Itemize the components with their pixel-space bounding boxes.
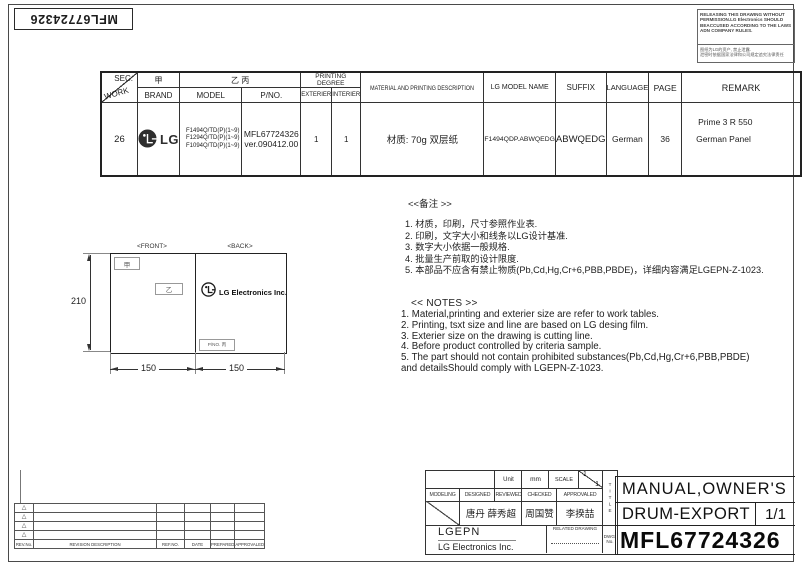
unit-label: Unit	[494, 471, 522, 489]
release-warning-box: RELEASING THIS DRAWING WITHOUT PERMISSIO…	[697, 9, 795, 63]
back-logo-text: LG Electronics Inc.	[219, 288, 287, 297]
company-code: LGEPN	[438, 526, 480, 538]
brand-text: LG	[160, 132, 179, 147]
header-interier: INTERIER	[332, 88, 361, 103]
checked-name: 周国赞	[521, 501, 557, 526]
note-en-item: 5. The part should not contain prohibite…	[401, 353, 750, 375]
header-material: MATERIAL AND PRINTING DESCRIPTION	[361, 72, 484, 103]
rev-header: REV.No.	[15, 540, 34, 549]
cell-brand: LG	[137, 103, 179, 177]
revision-row: △	[15, 504, 265, 513]
notes-en-title: << NOTES >>	[411, 298, 478, 309]
blank-cell	[426, 471, 494, 489]
header-sec: SEC.	[114, 74, 133, 83]
arrowhead-icon	[87, 254, 91, 261]
scale-value: 1 1	[578, 471, 603, 489]
back-logo-block: LG Electronics Inc.	[201, 282, 287, 302]
cell-work: 26	[101, 103, 137, 177]
note-cn-item: 3. 数字大小依据一般规格.	[405, 242, 764, 254]
model-line: F1294Q/TD(P)(1~9)	[180, 135, 241, 143]
col-reviewed: REVIEWED	[494, 488, 522, 502]
notes-cn-list: 1. 材质，印刷，尺寸参照作业表. 2. 印刷，文字大小和线条以LG设计基准. …	[405, 219, 764, 277]
pno-number: MFL67724326	[242, 129, 300, 139]
extension-line	[110, 352, 111, 374]
company-name: LG Electronics Inc.	[438, 542, 514, 552]
header-language: LANGUAGE	[606, 72, 649, 103]
revision-row: △	[15, 522, 265, 531]
back-label: <BACK>	[210, 243, 270, 250]
front-mark-yi-box: 乙	[155, 283, 183, 295]
header-remark: REMARK	[682, 72, 801, 103]
front-mark-jia-box: 甲	[114, 257, 140, 270]
arrowhead-icon	[276, 367, 283, 371]
doc-number: MFL67724326	[616, 526, 795, 554]
header-printing-degree: PRINTING DEGREE	[301, 72, 361, 88]
scale-label: SCALE	[548, 471, 579, 489]
rev-header: REF.NO.	[157, 540, 185, 549]
spec-table: SEC. WORK 甲 乙 丙 PRINTING DEGREE MATERIAL…	[100, 71, 802, 177]
header-brand-cn: 甲	[137, 72, 179, 88]
sheet-number: 1/1	[755, 503, 795, 526]
model-line: F1494Q/TD(P)(1~9)	[180, 128, 241, 136]
approvaled-name: 李揆喆	[556, 501, 603, 526]
lg-logo-icon	[138, 129, 157, 150]
warning-text-cn: 图纸为LG的资产, 禁止泄露. 泄密时依据国家法律和公司规定追究法律责任	[698, 45, 794, 66]
rev-header: DATE	[185, 540, 211, 549]
revision-table-wrap: △ △ △ △ REV.No. REVISION DESCRIPTION REF…	[14, 503, 265, 549]
arrowhead-icon	[187, 367, 194, 371]
revision-header-row: REV.No. REVISION DESCRIPTION REF.NO. DAT…	[15, 540, 265, 549]
title-block-middle: Unit mm SCALE 1 1 TITLE MODELING DESIGNE…	[425, 470, 618, 555]
revision-row: △	[15, 531, 265, 540]
note-cn-item: 1. 材质，印刷，尺寸参照作业表.	[405, 219, 764, 231]
cell-page: 36	[649, 103, 682, 177]
col-designed: DESIGNED	[459, 488, 495, 502]
company-cell: LGEPN LG Electronics Inc.	[426, 525, 558, 553]
arrowhead-icon	[196, 367, 203, 371]
header-lg-model-name: LG MODEL NAME	[484, 72, 556, 103]
remark-line: German Panel	[696, 134, 800, 144]
header-page: PAGE	[649, 72, 682, 103]
lg-logo-icon	[201, 282, 216, 302]
scale-numerator: 1	[583, 471, 587, 478]
extension-line	[83, 351, 110, 352]
title-block-right: MANUAL,OWNER'S DRUM-EXPORT 1/1 MFL677243…	[615, 476, 795, 555]
corner-part-number-box: MFL67724326	[14, 8, 133, 30]
revision-marker-icon: △	[15, 531, 34, 540]
revision-marker-icon: △	[15, 522, 34, 531]
extension-line	[195, 352, 196, 374]
dim-height-value: 210	[71, 296, 86, 306]
rev-header: PREPARED	[211, 540, 235, 549]
remark-line: Prime 3 R 550	[698, 117, 800, 127]
col-modeling: MODELING	[426, 488, 459, 502]
drawing-sheet: MFL67724326 RELEASING THIS DRAWING WITHO…	[0, 0, 802, 567]
pno-version: ver.090412.00	[242, 139, 300, 149]
note-cn-item: 4. 批量生产前取的设计限度.	[405, 254, 764, 266]
revision-table: △ △ △ △ REV.No. REVISION DESCRIPTION REF…	[14, 503, 265, 549]
extension-line	[284, 352, 285, 374]
header-exterier: EXTERIER	[301, 88, 332, 103]
modeling-slash-cell	[426, 501, 459, 526]
revision-row: △	[15, 513, 265, 522]
panel-divider-line	[195, 253, 196, 352]
header-model: MODEL	[180, 88, 242, 103]
header-work-sec: SEC. WORK	[101, 72, 137, 103]
corner-part-number: MFL67724326	[30, 12, 118, 26]
dim-width-left-value: 150	[138, 363, 159, 373]
unit-value: mm	[521, 471, 549, 489]
back-pno-box: P/NO. 丙	[199, 339, 235, 351]
divider	[438, 540, 516, 541]
header-brand: BRAND	[137, 88, 179, 103]
front-mark-yi: 乙	[166, 284, 173, 294]
note-cn-item: 5. 本部品不应含有禁止物质(Pb,Cd,Hg,Cr+6,PBB,PBDE)，详…	[405, 265, 764, 277]
cell-pno: MFL67724326 ver.090412.00	[242, 103, 301, 177]
cell-exterier: 1	[301, 103, 332, 177]
notes-en-list: 1. Material,printing and exterier size a…	[401, 310, 750, 375]
cell-material: 材质: 70g 双层纸	[361, 103, 484, 177]
front-label: <FRONT>	[122, 243, 182, 250]
back-pno-mark: P/NO. 丙	[208, 342, 226, 348]
front-mark-jia: 甲	[124, 259, 131, 269]
related-drawing-dotted-line	[551, 531, 599, 544]
scale-denominator: 1	[595, 481, 599, 488]
arrowhead-icon	[111, 367, 118, 371]
rev-header: REVISION DESCRIPTION	[34, 540, 157, 549]
cell-lg-model-name: F1494QDP.ABWQEDG	[484, 103, 556, 177]
revision-marker-icon: △	[15, 513, 34, 522]
warning-text-en: RELEASING THIS DRAWING WITHOUT PERMISSIO…	[698, 10, 794, 45]
col-approvaled: APPROVALED	[556, 488, 603, 502]
arrowhead-icon	[87, 344, 91, 351]
revision-marker-icon: △	[15, 504, 34, 513]
cell-language: German	[606, 103, 649, 177]
doc-title-line1: MANUAL,OWNER'S	[616, 477, 795, 503]
cell-interier: 1	[332, 103, 361, 177]
header-pno: P/NO.	[242, 88, 301, 103]
header-work: WORK	[103, 86, 129, 102]
cell-models: F1494Q/TD(P)(1~9) F1294Q/TD(P)(1~9) F109…	[180, 103, 242, 177]
related-drawing-cell: RELATED DRAWING	[546, 525, 603, 553]
note-cn-item: 2. 印刷，文字大小和线条以LG设计基准.	[405, 231, 764, 243]
dim-line-height	[90, 255, 91, 350]
cell-remark: Prime 3 R 550 German Panel	[682, 103, 801, 177]
revision-column-line	[20, 470, 21, 503]
model-line: F1094Q/TD(P)(1~9)	[180, 143, 241, 151]
designed-name: 唐丹 薛秀超	[459, 501, 522, 526]
dim-width-right-value: 150	[226, 363, 247, 373]
notes-cn-title: <<备注 >>	[408, 196, 452, 210]
spec-table-wrap: SEC. WORK 甲 乙 丙 PRINTING DEGREE MATERIAL…	[100, 71, 802, 177]
header-suffix: SUFFIX	[555, 72, 606, 103]
cell-suffix: ABWQEDG	[555, 103, 606, 177]
header-model-cn: 乙 丙	[180, 72, 301, 88]
note-en-item: 2. Printing, tsxt size and line are base…	[401, 321, 750, 332]
col-checked: CHECKED	[521, 488, 557, 502]
doc-title-line2: DRUM-EXPORT	[616, 503, 755, 526]
rev-header: APPROVALED	[235, 540, 265, 549]
